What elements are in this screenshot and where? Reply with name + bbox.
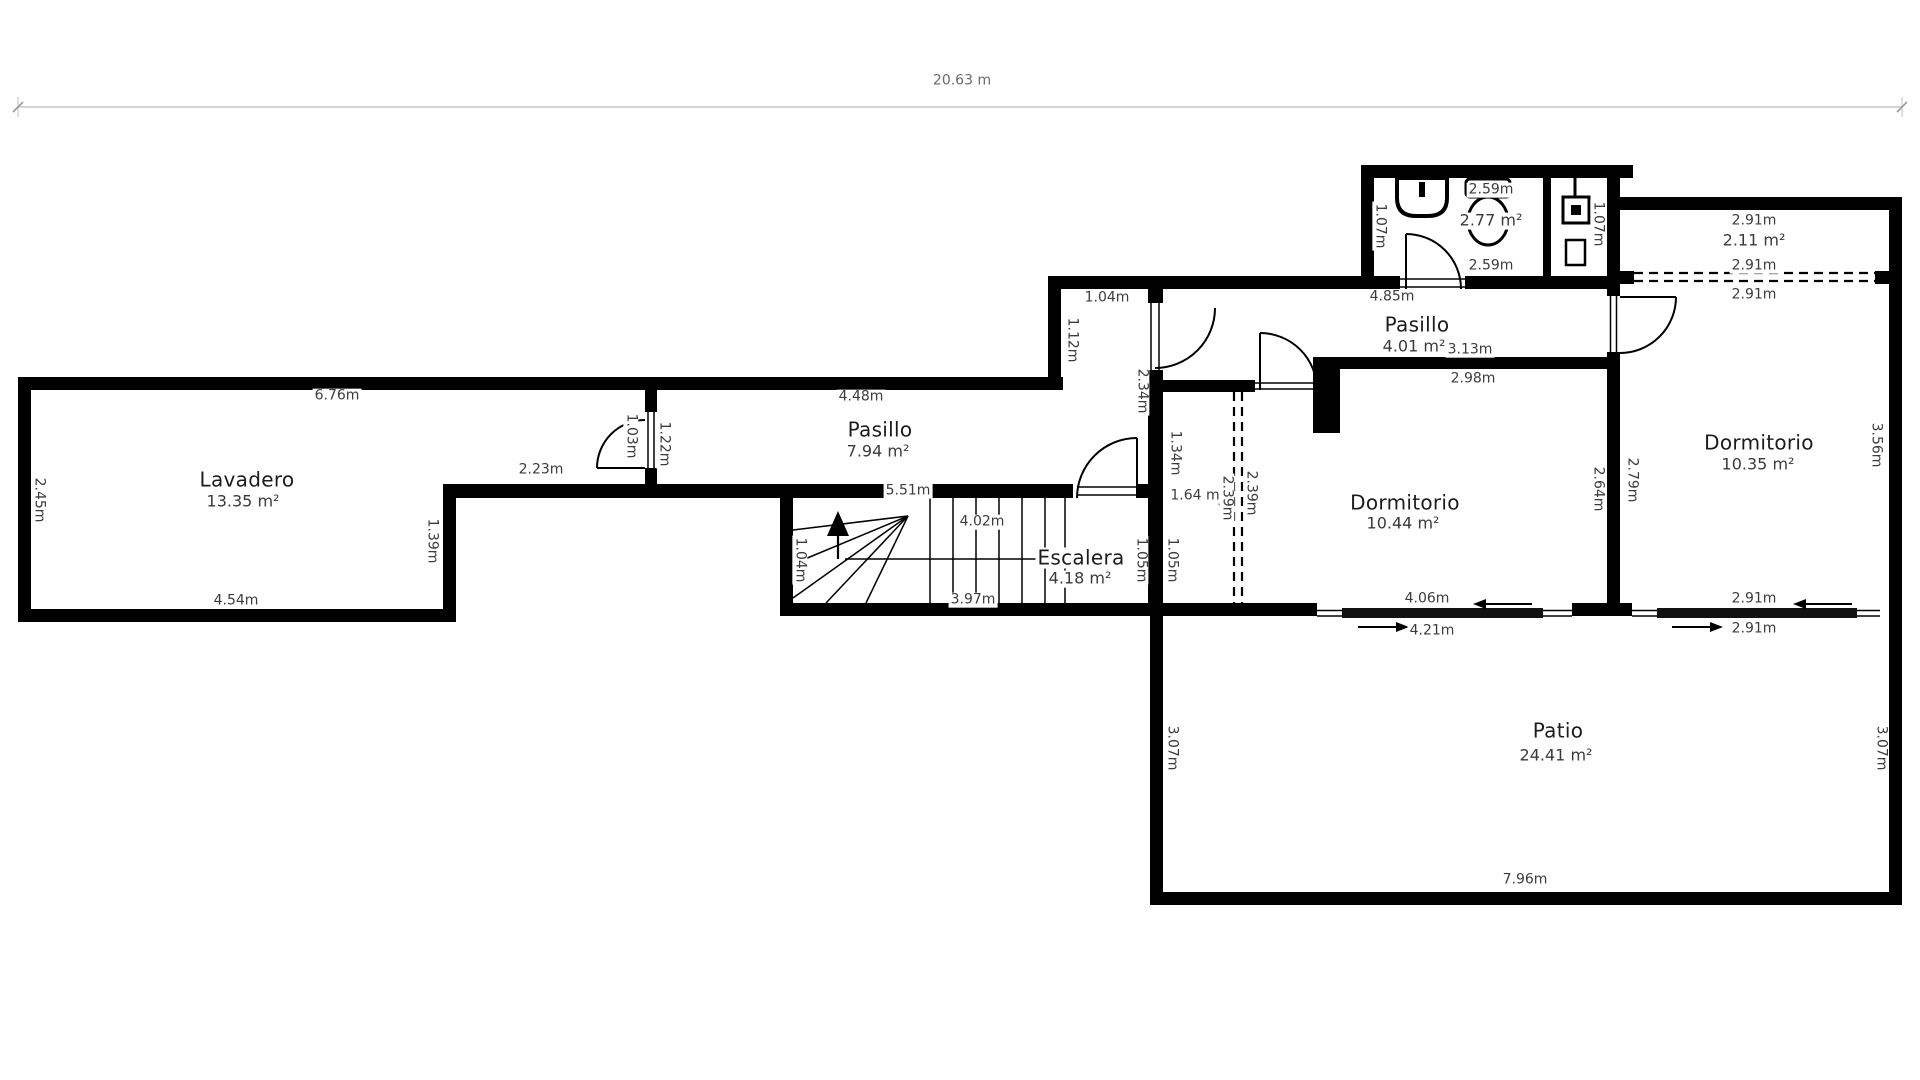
dim-pasillo-upper-width: 4.85m [1368, 290, 1417, 305]
dim-escalera-top: 4.02m [958, 515, 1007, 530]
room-label-dormitorio-2: Dormitorio [1702, 433, 1816, 454]
arrow-right-icon [1672, 622, 1723, 632]
room-area-patio: 24.41 m² [1518, 748, 1595, 765]
door-bano [1406, 234, 1461, 289]
door-dormitorio-2 [1620, 297, 1676, 353]
room-area-escalera: 4.18 m² [1047, 571, 1114, 588]
dim-lavadero-left: 2.45m [32, 476, 47, 525]
stair-direction-arrow [827, 511, 849, 559]
dim-corridor-wall: 2.34m [1135, 367, 1150, 416]
dim-patio-bottom: 7.96m [1501, 873, 1550, 888]
floor-plan-page: 20.63 m Lavadero 13.35 m² 6.76m 2.45m 4.… [0, 0, 1920, 1080]
dim-dorm1-top: 2.98m [1449, 372, 1498, 387]
dim-dorm2-right: 3.56m [1869, 421, 1884, 470]
dim-escalera-bottom: 3.97m [949, 593, 998, 608]
dim-lavadero-bottom: 4.54m [212, 594, 261, 609]
door-escalera [1077, 438, 1137, 498]
shower-icon [1563, 178, 1589, 265]
dim-slide1-bottom: 4.21m [1408, 624, 1457, 639]
dim-105-left: 1.05m [1134, 536, 1149, 585]
dim-bano-right: 1.07m [1591, 200, 1606, 249]
staircase [793, 498, 1065, 603]
dim-134: 1.34m [1168, 429, 1183, 478]
room-area-lavadero: 13.35 m² [205, 494, 282, 511]
dim-bano-left: 1.07m [1373, 202, 1388, 251]
dim-patio-left: 3.07m [1165, 724, 1180, 773]
room-label-escalera: Escalera [1035, 548, 1126, 569]
room-label-pasillo-main: Pasillo [846, 420, 915, 441]
dim-passage: 2.23m [517, 463, 566, 478]
dim-pasillo-top: 4.48m [837, 390, 886, 405]
dim-164: 1.64 m [1168, 489, 1221, 504]
dim-313: 3.13m [1446, 343, 1495, 358]
dim-dorm1-right-inner: 2.64m [1591, 465, 1606, 514]
room-area-cuarto: 2.11 m² [1721, 233, 1788, 250]
dim-105-right: 1.05m [1165, 536, 1180, 585]
dim-slide2-bottom: 2.91m [1730, 622, 1779, 637]
room-area-dormitorio-1: 10.44 m² [1365, 516, 1442, 533]
dim-corridor-width: 1.04m [1083, 291, 1132, 306]
dim-slide2-top: 2.91m [1730, 592, 1779, 607]
room-area-bano: 2.77 m² [1458, 213, 1525, 230]
dim-door-lavadero: 1.03m [624, 412, 639, 461]
dim-lavadero-top: 6.76m [313, 389, 362, 404]
dim-strip-top: 2.91m [1730, 214, 1779, 229]
dim-dash-top: 2.91m [1730, 259, 1779, 274]
door-dormitorio-1 [1260, 333, 1317, 390]
dim-dorm1-right-outer: 2.79m [1625, 456, 1640, 505]
walls [18, 165, 1902, 905]
dim-pasillo-left: 1.22m [657, 420, 672, 469]
dim-bano-top: 2.59m [1467, 183, 1516, 198]
door-pasillo-upper [1155, 308, 1215, 368]
dim-slide1-top: 4.06m [1403, 592, 1452, 607]
dim-corridor-height: 1.12m [1065, 316, 1080, 365]
floor-plan-drawing [0, 0, 1920, 1080]
arrow-left-icon [1793, 599, 1852, 609]
room-label-lavadero: Lavadero [198, 470, 297, 491]
room-area-dormitorio-2: 10.35 m² [1720, 457, 1797, 474]
arrow-right-icon [1358, 622, 1409, 632]
sink-icon [1397, 178, 1447, 216]
dim-lavadero-right: 1.39m [425, 517, 440, 566]
room-area-pasillo-upper: 4.01 m² [1381, 339, 1448, 356]
dim-239-left: 2.39m [1220, 474, 1235, 523]
dim-escalera-left: 1.04m [793, 536, 808, 585]
room-label-pasillo-upper: Pasillo [1383, 315, 1452, 336]
room-label-dormitorio-1: Dormitorio [1348, 493, 1462, 514]
dim-patio-right: 3.07m [1874, 724, 1889, 773]
room-label-patio: Patio [1531, 721, 1586, 742]
dim-total: 20.63 m [931, 74, 993, 89]
dim-bano-bottom: 2.59m [1467, 259, 1516, 274]
room-area-pasillo-main: 7.94 m² [845, 444, 912, 461]
overall-dimension-line [13, 97, 1907, 117]
arrow-left-icon [1473, 599, 1532, 609]
dim-239-right: 2.39m [1244, 469, 1259, 518]
dim-dash-bottom: 2.91m [1730, 288, 1779, 303]
dim-pasillo-bottom: 5.51m [884, 484, 933, 499]
